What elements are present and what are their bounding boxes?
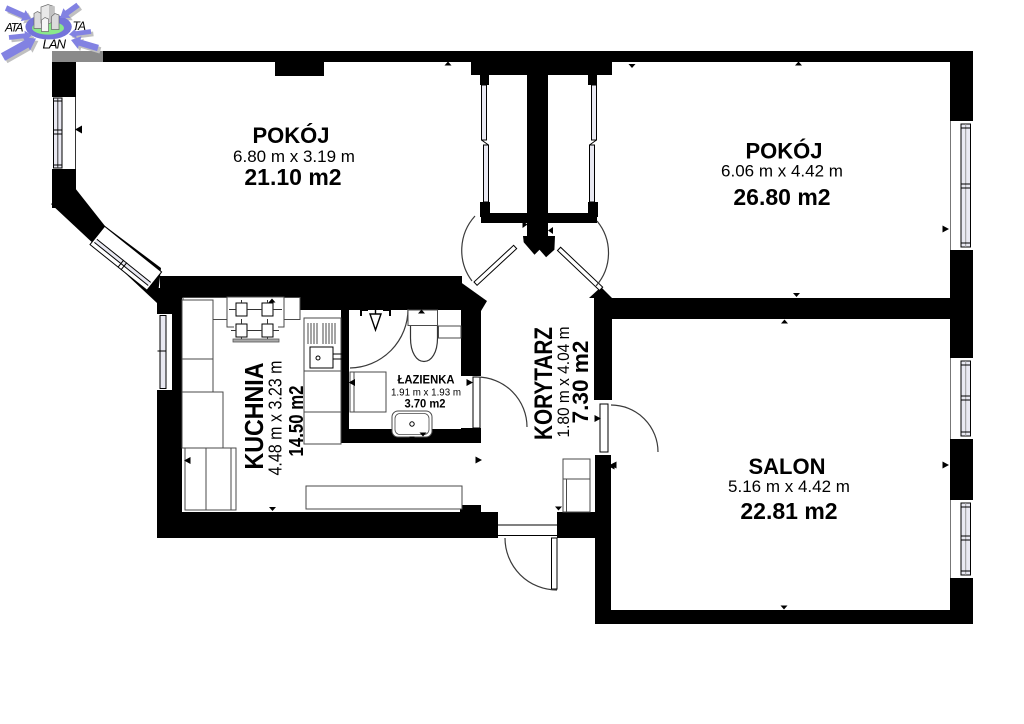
svg-text:14.50 m2: 14.50 m2 — [286, 386, 308, 457]
svg-text:LAN: LAN — [43, 37, 67, 52]
svg-text:ATA: ATA — [4, 21, 24, 35]
svg-text:POKÓJ: POKÓJ — [745, 139, 822, 164]
svg-text:26.80 m2: 26.80 m2 — [733, 184, 830, 210]
svg-text:POKÓJ: POKÓJ — [252, 123, 329, 148]
svg-text:22.81 m2: 22.81 m2 — [740, 498, 837, 524]
svg-text:6.06 m x 4.42 m: 6.06 m x 4.42 m — [721, 162, 843, 181]
svg-text:7.30 m2: 7.30 m2 — [568, 341, 593, 424]
svg-text:SALON: SALON — [749, 454, 826, 479]
svg-text:3.70 m2: 3.70 m2 — [405, 399, 446, 411]
svg-text:TA: TA — [73, 19, 87, 33]
svg-text:4.48 m x 3.23 m: 4.48 m x 3.23 m — [266, 361, 286, 476]
svg-text:ŁAZIENKA: ŁAZIENKA — [398, 373, 455, 387]
svg-text:1.91 m x 1.93 m: 1.91 m x 1.93 m — [391, 388, 461, 399]
svg-text:5.16 m x 4.42 m: 5.16 m x 4.42 m — [728, 477, 850, 496]
svg-text:KUCHNIA: KUCHNIA — [239, 362, 269, 469]
svg-text:KORYTARZ: KORYTARZ — [530, 327, 558, 440]
svg-text:21.10 m2: 21.10 m2 — [244, 164, 341, 190]
